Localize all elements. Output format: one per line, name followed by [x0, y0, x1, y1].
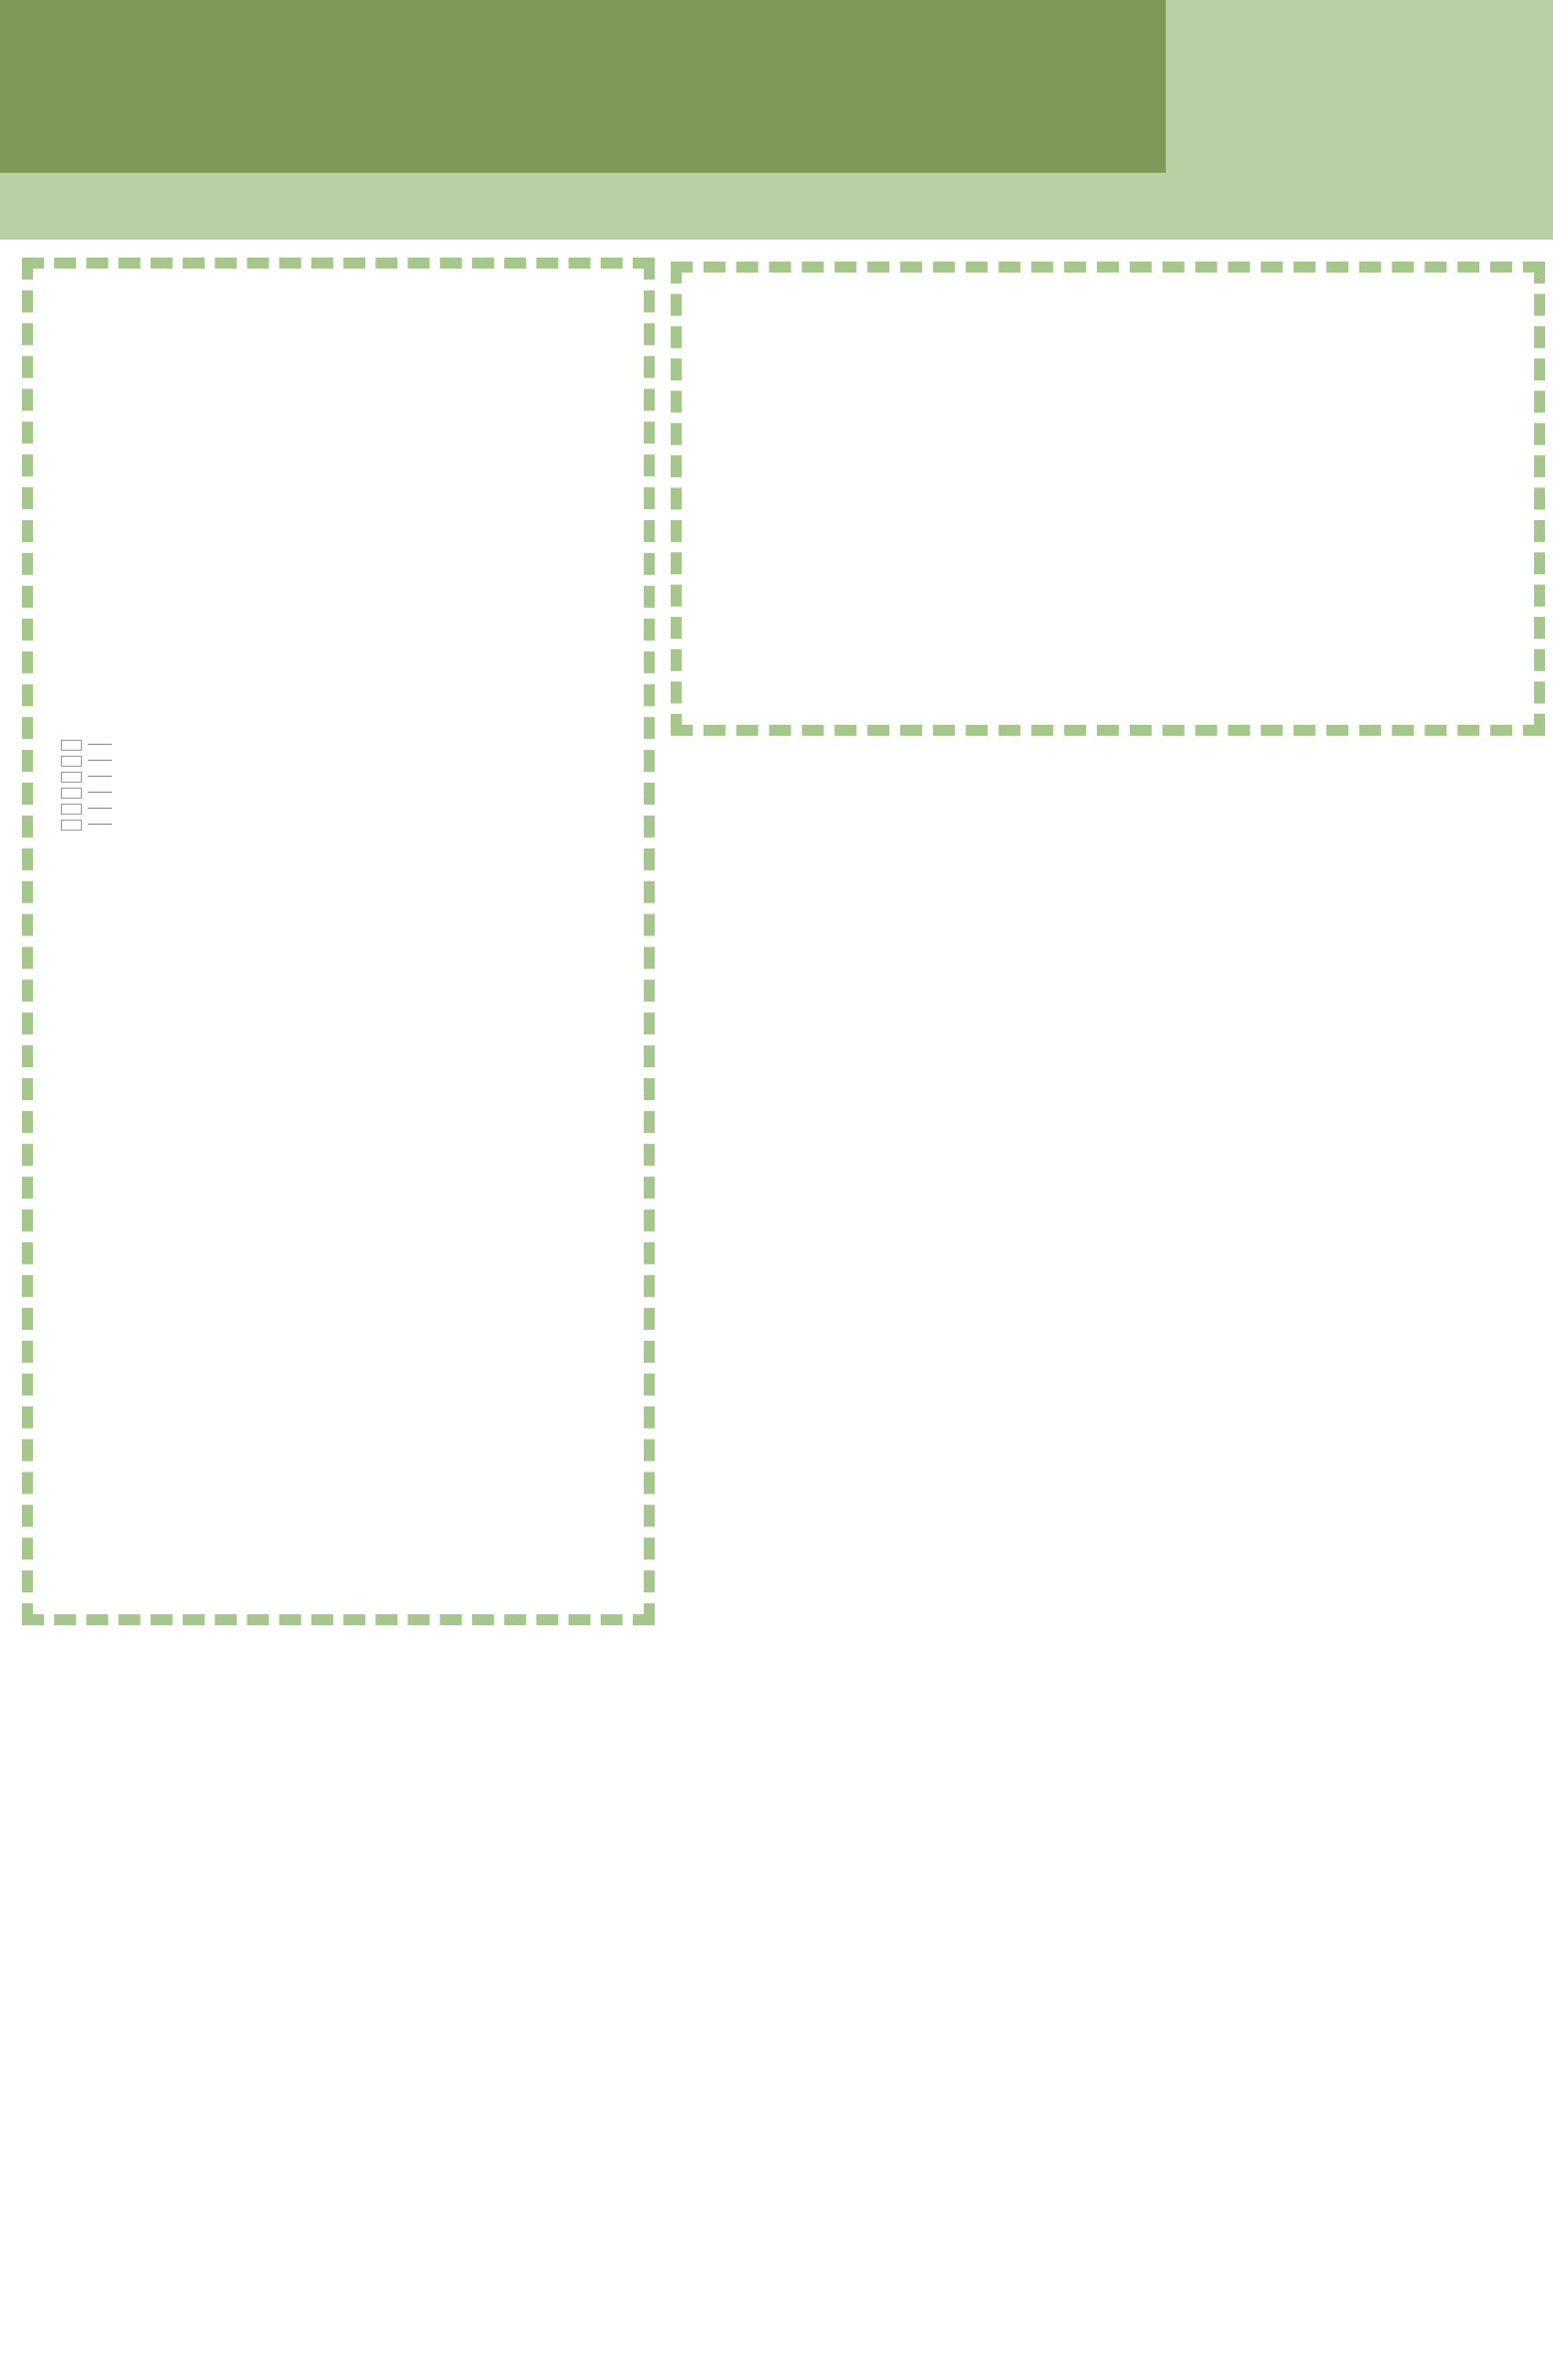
- header-dark-band: [0, 0, 1166, 173]
- legend-item: [52, 769, 182, 785]
- legend-item: [52, 737, 182, 753]
- legend-item: [52, 801, 182, 817]
- rest-swatch: [61, 788, 82, 799]
- section-drawing: [671, 764, 1539, 1308]
- legend: [52, 737, 182, 833]
- poster-page: [0, 0, 1553, 2380]
- activity-swatch: [61, 820, 82, 831]
- wave-icon: [1166, 0, 1553, 240]
- second-floor-plan-label: [542, 1174, 549, 1192]
- legend-item: [52, 785, 182, 801]
- storage-swatch: [61, 756, 82, 767]
- first-floor-plan: [95, 295, 524, 739]
- legend-item: [52, 817, 182, 833]
- description-panel: [671, 262, 1545, 736]
- second-floor-plan: [175, 769, 509, 1223]
- third-floor-plan-label: [309, 1573, 316, 1591]
- third-floor-plan: [200, 1298, 469, 1562]
- elevation-drawing: [671, 1316, 1539, 1619]
- office-swatch: [61, 740, 82, 751]
- first-floor-plan-label: [544, 715, 551, 733]
- aerial-rendering: [24, 1640, 1532, 2347]
- legend-item: [52, 753, 182, 769]
- tour-swatch: [61, 772, 82, 783]
- traffic-swatch: [61, 804, 82, 815]
